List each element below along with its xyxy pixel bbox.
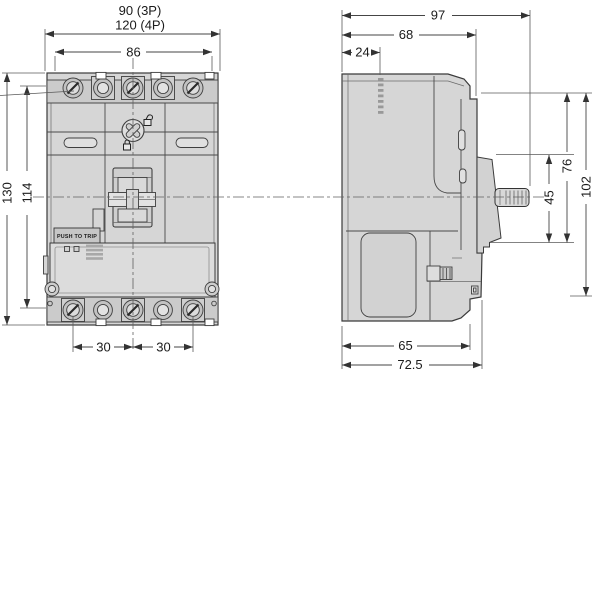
dim-label-depth-body: 68 xyxy=(399,27,413,42)
dim-side-height-overall: 102 xyxy=(570,93,594,296)
accessory-slot-left xyxy=(64,138,97,148)
push-to-trip-label: PUSH TO TRIP xyxy=(57,234,97,240)
toggle-handle-front xyxy=(109,168,156,227)
dim-label-width-3p: 90 (3P) xyxy=(119,3,162,18)
dim-label-height: 130 xyxy=(0,182,15,204)
faceplate-slot-upper xyxy=(459,130,466,150)
dim-label-height-handle: 45 xyxy=(542,190,557,204)
dim-label-depth-base: 65 xyxy=(398,338,412,353)
dim-label-mount-width: 86 xyxy=(126,45,140,60)
front-cover xyxy=(50,243,215,297)
left-edge-tab xyxy=(44,256,49,274)
dim-label-height-overall: 102 xyxy=(579,176,594,198)
dim-label-height-front: 76 xyxy=(560,159,575,173)
dim-label-depth-overall: 97 xyxy=(431,8,445,23)
dim-label-mount-height: 114 xyxy=(20,183,35,204)
terminal-screw xyxy=(183,78,203,98)
mounting-screw-right xyxy=(205,282,219,296)
dim-label-depth-base-overall: 72.5 xyxy=(397,357,422,372)
front-clip-tab xyxy=(472,286,479,294)
toggle-handle-side xyxy=(495,189,529,207)
accessory-slot-right xyxy=(176,138,208,148)
dim-label-pitch-a: 30 xyxy=(96,340,110,355)
terminal-screw xyxy=(94,79,113,98)
terminal-screw xyxy=(154,301,173,320)
push-to-trip-button: PUSH TO TRIP xyxy=(54,228,100,243)
side-cover-panel xyxy=(361,233,416,317)
terminal-screw xyxy=(154,79,173,98)
faceplate-slot-lower xyxy=(460,169,467,183)
terminal-screw xyxy=(94,301,113,320)
dim-front-mount-width: 86 xyxy=(55,45,212,72)
terminal-screw xyxy=(63,78,83,98)
dim-label-pitch-b: 30 xyxy=(156,340,170,355)
side-view xyxy=(342,74,529,321)
technical-drawing-canvas: PUSH TO TRIP xyxy=(0,0,600,600)
mounting-screw-left xyxy=(45,282,59,296)
dim-front-width: 90 (3P) 120 (4P) xyxy=(45,3,220,71)
dim-label-depth-back: 24 xyxy=(355,45,369,60)
dim-label-width-4p: 120 (4P) xyxy=(115,18,165,33)
front-view: PUSH TO TRIP xyxy=(44,72,220,325)
breaker-dimension-drawing: PUSH TO TRIP xyxy=(0,0,600,600)
dim-side-depth-back: 24 xyxy=(342,45,380,76)
